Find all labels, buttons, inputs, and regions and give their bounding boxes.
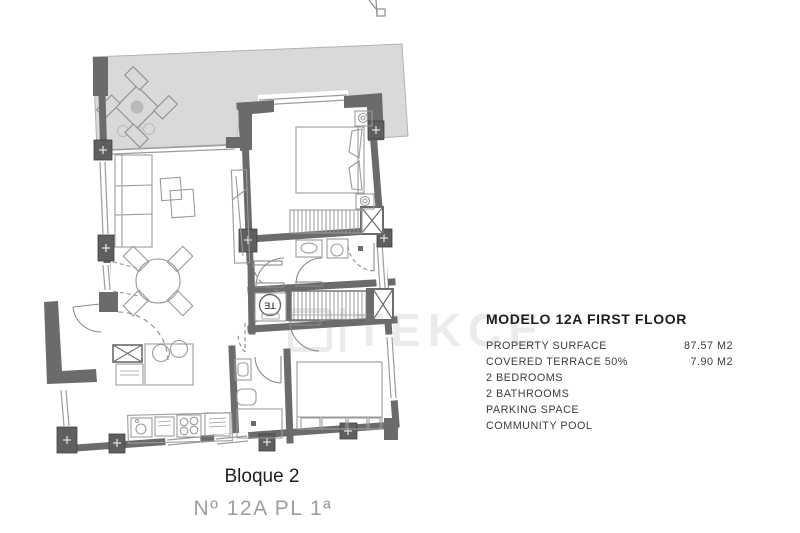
info-label: COVERED TERRACE 50% xyxy=(486,354,628,370)
info-row-bathrooms: 2 BATHROOMS xyxy=(486,386,733,402)
property-info-panel: MODELO 12A FIRST FLOOR PROPERTY SURFACE … xyxy=(486,311,733,434)
entry-wall xyxy=(44,301,97,384)
info-value: 7.90 M2 xyxy=(690,354,733,370)
info-row-parking: PARKING SPACE xyxy=(486,402,733,418)
info-row-pool: COMMUNITY POOL xyxy=(486,418,733,434)
hall-closets: TE xyxy=(255,291,367,321)
te-label: TE xyxy=(264,301,276,311)
info-label: PROPERTY SURFACE xyxy=(486,338,607,354)
bathroom2-fixtures xyxy=(235,359,282,438)
info-row-bedrooms: 2 BEDROOMS xyxy=(486,370,733,386)
north-mark-icon xyxy=(369,0,385,16)
info-label: 2 BEDROOMS xyxy=(486,370,563,386)
unit-label: Nº 12A PL 1ª xyxy=(153,497,373,521)
info-value: 87.57 M2 xyxy=(684,338,733,354)
block-label: Bloque 2 xyxy=(162,466,362,488)
info-label: PARKING SPACE xyxy=(486,402,579,418)
model-title: MODELO 12A FIRST FLOOR xyxy=(486,311,733,327)
bathroom1-fixtures xyxy=(296,239,374,271)
bedroom1-furniture xyxy=(290,111,374,233)
living-room-furniture xyxy=(113,155,250,316)
page: TE xyxy=(0,0,800,533)
floor-plan: TE xyxy=(0,0,800,533)
info-row-surface: PROPERTY SURFACE 87.57 M2 xyxy=(486,338,733,354)
bedroom2-furniture xyxy=(297,362,382,429)
info-label: COMMUNITY POOL xyxy=(486,418,592,434)
kitchen-furniture xyxy=(113,341,232,444)
info-row-terrace: COVERED TERRACE 50% 7.90 M2 xyxy=(486,354,733,370)
info-label: 2 BATHROOMS xyxy=(486,386,569,402)
